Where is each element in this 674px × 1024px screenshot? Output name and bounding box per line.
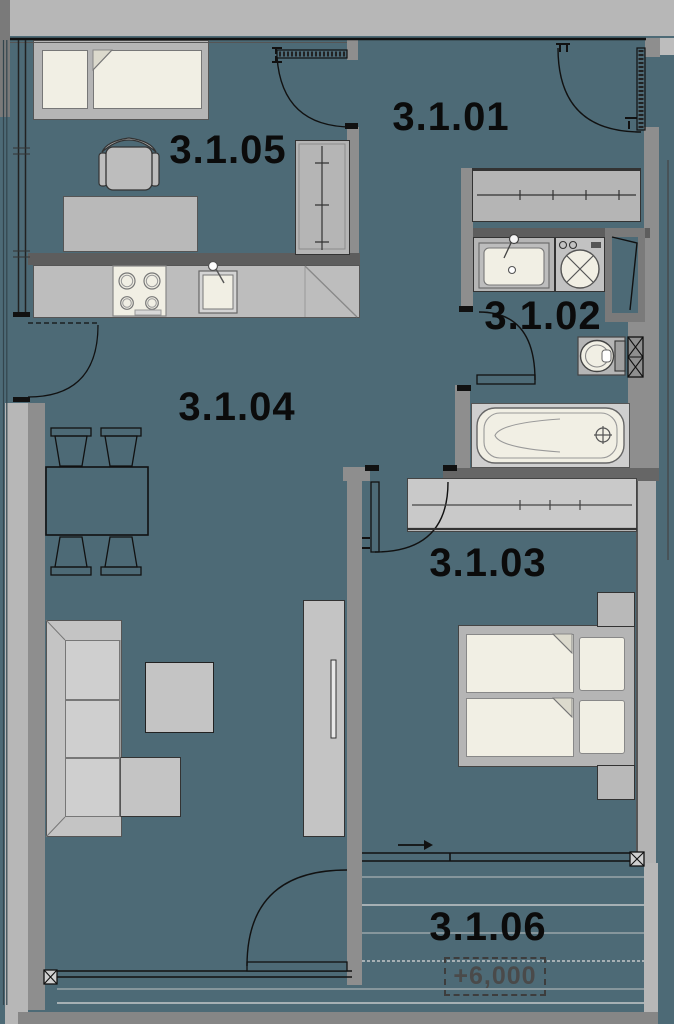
top-wall-line [10, 39, 646, 43]
room-label-3-1-05: 3.1.05 [169, 130, 286, 170]
office-chair-icon [99, 138, 159, 190]
door-505 [272, 48, 358, 129]
sofa-miter-lines [46, 620, 120, 837]
room-label-3-1-03: 3.1.03 [429, 543, 546, 583]
wardrobe-505-rail [299, 144, 345, 250]
bedroom-door [362, 465, 457, 552]
entry-door [556, 44, 645, 132]
stove-icon [113, 266, 166, 316]
toilet-shaft-icon [628, 337, 643, 377]
left-curtain-wall [4, 40, 31, 1005]
dining-table-icon [46, 467, 148, 535]
elevation-marker: +6,000 [444, 957, 546, 996]
corner-cabinet-icon [305, 266, 357, 317]
bedroom-wardrobe-rail [407, 500, 637, 529]
blanket-fold-303 [553, 634, 572, 717]
room-label-3-1-04: 3.1.04 [178, 387, 295, 427]
column-left-icon [44, 970, 57, 984]
washing-machine-icon [560, 242, 602, 289]
kitchen-sink-icon [199, 262, 237, 314]
column-right-icon [630, 852, 644, 866]
tv-icon [331, 660, 336, 738]
room-label-3-1-01: 3.1.01 [392, 97, 509, 137]
hall-closet-rail [472, 170, 641, 200]
toilet-icon [578, 337, 625, 375]
dining-chairs-icon [51, 428, 141, 575]
floor-plan: 3.1.05 3.1.01 3.1.02 3.1.04 3.1.03 3.1.0… [0, 0, 674, 1024]
bathtub-icon [477, 408, 624, 463]
elevation-value: +6,000 [453, 962, 536, 991]
sliding-window [362, 840, 630, 861]
vanity-sink-icon [479, 235, 549, 289]
living-balcony-door-upper [28, 323, 98, 397]
shaft-access-panel [612, 237, 637, 310]
blanket-fold-505 [93, 50, 112, 70]
living-balcony-door-lower [57, 870, 352, 977]
plan-linework [0, 0, 674, 1024]
room-label-3-1-06: 3.1.06 [429, 907, 546, 947]
balcony-deck-lines [57, 877, 644, 1003]
room-label-3-1-02: 3.1.02 [484, 296, 601, 336]
